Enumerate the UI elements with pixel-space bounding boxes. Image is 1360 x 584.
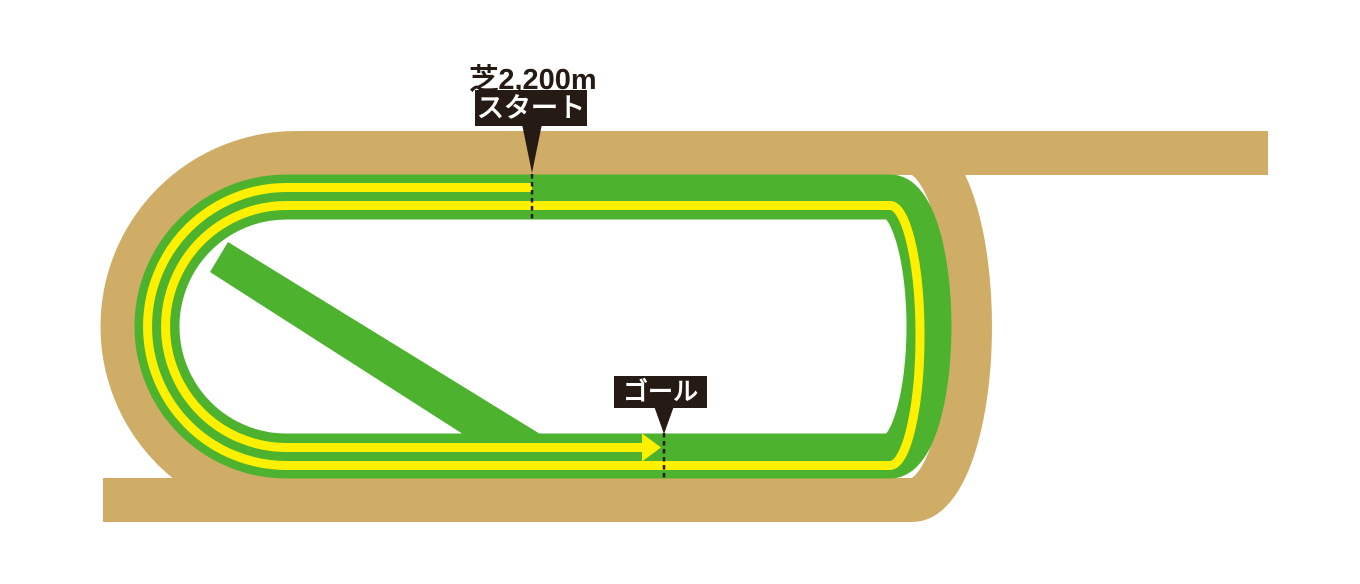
racecourse-diagram xyxy=(0,0,1360,584)
race-route-line xyxy=(148,188,920,466)
goal-pointer xyxy=(654,406,674,434)
start-label: スタート xyxy=(475,90,587,126)
course-map: 芝2,200m スタート ゴール xyxy=(0,0,1360,584)
turf-diagonal-chute xyxy=(210,242,545,445)
goal-label: ゴール xyxy=(614,376,707,408)
turf-track xyxy=(157,197,929,456)
